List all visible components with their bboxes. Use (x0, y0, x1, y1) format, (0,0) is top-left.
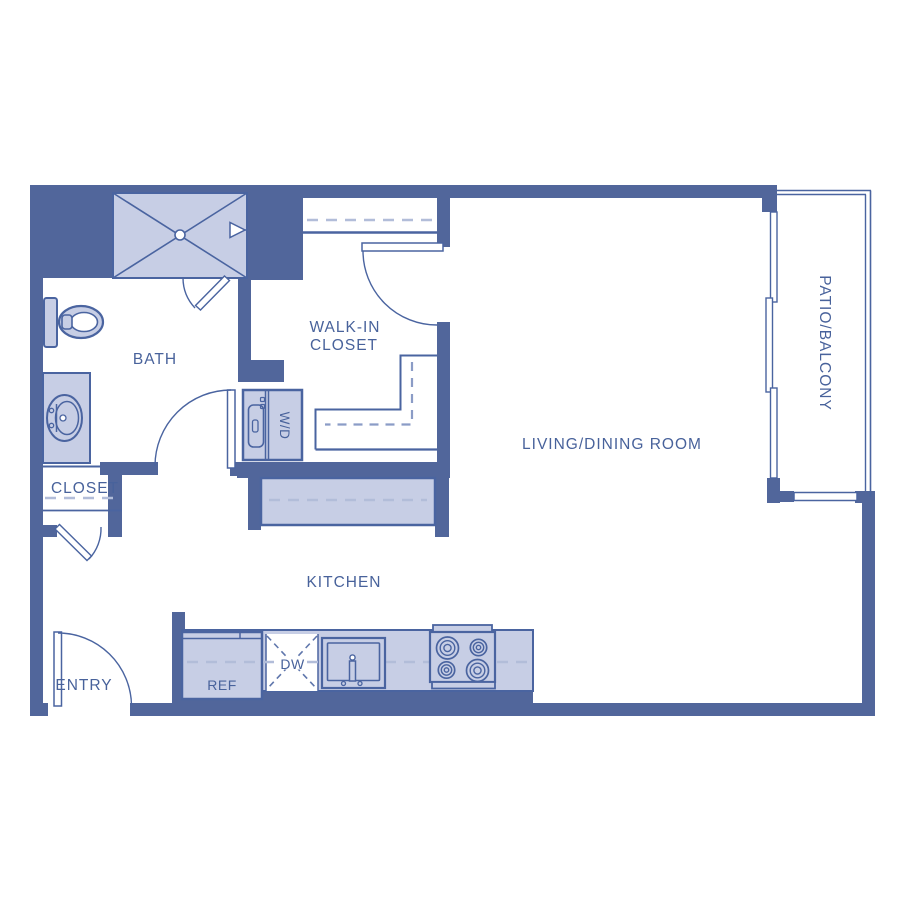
entry-door-swing (58, 633, 132, 705)
kitchen-faucet (350, 661, 356, 681)
closet-door-leaf (55, 525, 92, 561)
wall-left (30, 185, 43, 703)
room-label-kitchen: KITCHEN (306, 574, 381, 591)
bath-vanity (43, 373, 90, 463)
stove-front-panel (432, 682, 495, 689)
appliance-label-washer-dryer: W/D (277, 412, 292, 440)
wall-closet-right (108, 462, 122, 537)
wall-peninsula-left (248, 478, 261, 530)
walkin-door-swing (363, 251, 437, 325)
wall-walkin-right-upper (437, 198, 450, 247)
toilet-tank (44, 298, 57, 347)
bath-door-leaf (228, 390, 236, 468)
wall-bath-plumbing-block (43, 198, 113, 278)
entry-door-leaf (54, 632, 62, 706)
shower-door-leaf (196, 276, 230, 310)
balcony-railing (794, 493, 857, 501)
room-label-closet: CLOSET (51, 480, 119, 497)
room-label-living-dining: LIVING/DINING ROOM (522, 436, 702, 453)
wall-bath-closet-divider (238, 278, 251, 366)
sliding-door-panel-bottom (771, 388, 778, 478)
stove (430, 625, 495, 689)
toilet (44, 298, 103, 347)
sliding-door-panel-top (771, 212, 778, 302)
walkin-door-leaf (362, 243, 443, 251)
entry-door (54, 632, 132, 706)
wall-patio-corner-right (855, 491, 875, 503)
vanity-drain (60, 415, 66, 421)
shower (113, 193, 247, 310)
kitchen-sink-drain (350, 655, 355, 660)
room-label-walkin-line2: CLOSET (310, 337, 378, 354)
peninsula-counter-top (261, 478, 435, 525)
wall-wd-top (238, 360, 284, 382)
room-label-bath: BATH (133, 351, 177, 368)
toilet-seat-hinge (62, 315, 72, 329)
bath-door (155, 390, 235, 468)
floor-plan: BATH WALK-IN CLOSET LIVING/DINING ROOM P… (0, 0, 900, 900)
shower-door-swing (183, 278, 195, 308)
toilet-bowl-inner (71, 313, 98, 332)
wall-below-walkin (237, 462, 450, 478)
room-label-entry: ENTRY (55, 677, 112, 694)
wall-shower-closet-block (247, 185, 303, 280)
walkin-l-shelf-edge (316, 356, 438, 450)
shower-drain (175, 230, 185, 240)
appliance-label-dishwasher: DW (280, 656, 305, 672)
appliance-label-refrigerator: REF (207, 677, 237, 693)
wall-top-right-corner (762, 185, 777, 212)
wall-right (862, 491, 875, 716)
room-label-patio-balcony: PATIO/BALCONY (816, 275, 833, 411)
peninsula-counter (261, 478, 435, 525)
wall-closet-bottom-stub (43, 525, 57, 537)
closet-door-swing (89, 527, 101, 559)
bath-door-swing (155, 390, 231, 466)
washer-dryer (243, 390, 302, 460)
wall-walkin-right-lower (437, 322, 450, 465)
sliding-door (766, 212, 777, 478)
wall-peninsula-right (435, 478, 449, 537)
wall-patio-corner-left-foot (767, 491, 794, 502)
floor-plan-drawing: BATH WALK-IN CLOSET LIVING/DINING ROOM P… (0, 0, 900, 900)
room-label-walkin-line1: WALK-IN (309, 319, 380, 336)
sliding-door-panel-middle (766, 298, 773, 392)
walkin-l-rod (325, 362, 412, 425)
wall-bottom-left-stub (30, 703, 48, 716)
